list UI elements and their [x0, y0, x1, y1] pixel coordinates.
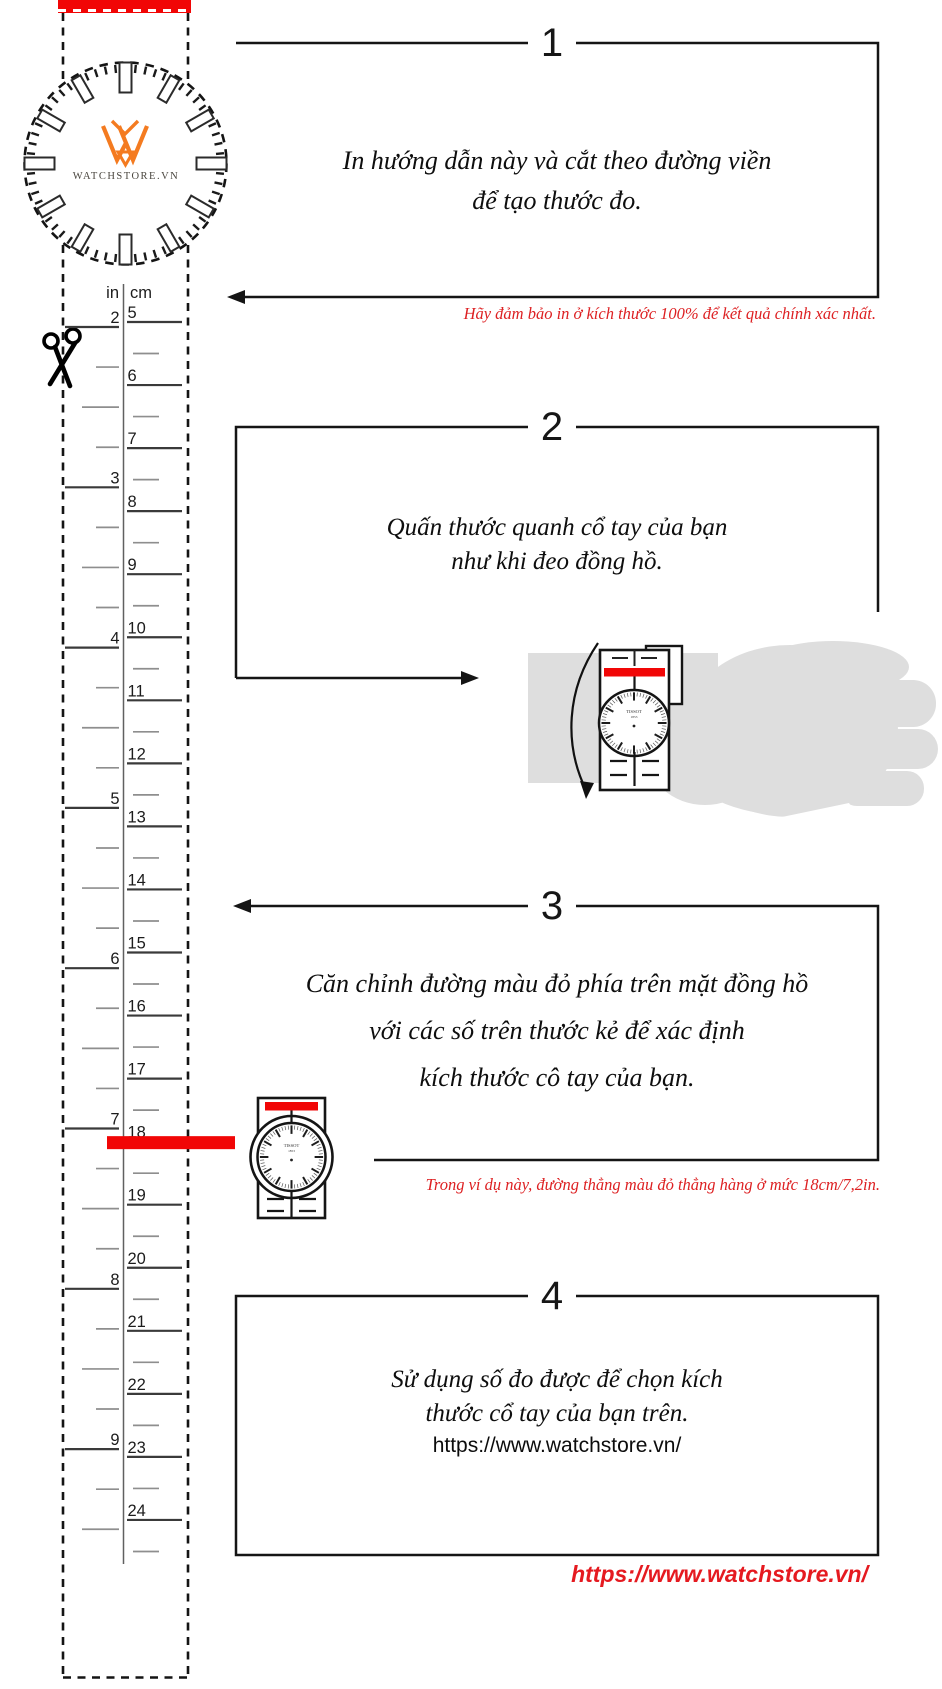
step-2-line-2: như khi đeo đồng hồ. [236, 545, 878, 579]
svg-text:22: 22 [128, 1376, 146, 1394]
svg-text:14: 14 [128, 871, 146, 889]
wrist-measure-guide-page: 2345678956789101112131415161718192021222… [0, 0, 942, 1689]
svg-text:23: 23 [128, 1439, 146, 1457]
step-1-number: 1 [512, 19, 592, 67]
mini-red-align-line [265, 1102, 318, 1111]
step-3-line-3: kích thước cô tay của bạn. [236, 1054, 878, 1101]
svg-text:11: 11 [128, 682, 145, 700]
red-measure-line-18cm [107, 1136, 235, 1149]
svg-text:12: 12 [128, 745, 146, 763]
step-4-line-1: Sử dụng số đo được để chọn kích [236, 1363, 878, 1397]
svg-text:5: 5 [128, 304, 137, 322]
svg-text:7: 7 [128, 430, 137, 448]
step-1-text: In hướng dẫn này và cắt theo đường viền … [236, 141, 878, 221]
hour-marker [25, 158, 55, 170]
svg-text:10: 10 [128, 619, 146, 637]
step-4-line-2: thước cổ tay của bạn trên. [236, 1397, 878, 1431]
red-align-line [604, 668, 665, 677]
finger [838, 680, 936, 727]
svg-text:24: 24 [128, 1502, 146, 1520]
step-3-line-2: với các số trên thước kẻ để xác định [236, 1007, 878, 1054]
hour-marker [197, 158, 227, 170]
svg-text:TISSOT: TISSOT [626, 709, 642, 714]
step-1-note: Hãy đảm bảo in ở kích thước 100% để kết … [276, 304, 876, 324]
svg-text:4: 4 [110, 630, 119, 648]
step-2-number: 2 [512, 403, 592, 451]
step-2-text: Quấn thước quanh cổ tay của bạn như khi … [236, 511, 878, 579]
step-1-line-1: In hướng dẫn này và cắt theo đường viền [236, 141, 878, 181]
svg-text:9: 9 [110, 1431, 119, 1449]
footer-website-link[interactable]: https://www.watchstore.vn/ [368, 1561, 868, 1588]
step-3-number: 3 [512, 882, 592, 930]
svg-text:20: 20 [128, 1250, 146, 1268]
mini-paper-watch: TISSOT1853 [251, 1098, 333, 1218]
wrist-illustration: TISSOT1853 [528, 641, 938, 818]
watchstore-brand-text: WATCHSTORE.VN [55, 171, 197, 182]
hour-marker [120, 235, 132, 265]
svg-text:8: 8 [128, 493, 137, 511]
svg-text:7: 7 [110, 1111, 119, 1129]
svg-text:6: 6 [128, 367, 137, 385]
ruler-unit-inches-label: in [88, 284, 119, 303]
svg-text:1853: 1853 [288, 1149, 295, 1153]
step-3-note: Trong ví dụ này, đường thẳng màu đỏ thẳn… [180, 1175, 880, 1195]
step-1-arrow-left [227, 290, 245, 304]
step-3-text: Căn chỉnh đường màu đỏ phía trên mặt đồn… [236, 960, 878, 1101]
svg-text:9: 9 [128, 556, 137, 574]
svg-text:8: 8 [110, 1271, 119, 1289]
svg-text:13: 13 [128, 808, 146, 826]
svg-text:21: 21 [128, 1313, 146, 1331]
step-4-text: Sử dụng số đo được để chọn kích thước cổ… [236, 1363, 878, 1431]
step-2-line-1: Quấn thước quanh cổ tay của bạn [236, 511, 878, 545]
svg-text:16: 16 [128, 998, 146, 1016]
svg-text:19: 19 [128, 1187, 146, 1205]
svg-text:5: 5 [110, 790, 119, 808]
ruler-scales: 2345678956789101112131415161718192021222… [65, 284, 235, 1564]
step-3-arrow-left [233, 899, 251, 913]
svg-text:2: 2 [110, 309, 119, 327]
svg-text:TISSOT: TISSOT [284, 1143, 300, 1148]
svg-text:6: 6 [110, 950, 119, 968]
step-4-number: 4 [512, 1272, 592, 1320]
ruler-unit-cm-label: cm [130, 284, 170, 303]
svg-text:15: 15 [128, 935, 146, 953]
svg-text:1853: 1853 [631, 715, 638, 719]
step-2-arrow-right [461, 671, 479, 685]
svg-text:17: 17 [128, 1061, 146, 1079]
step-4-website-link[interactable]: https://www.watchstore.vn/ [236, 1434, 878, 1458]
hour-marker [120, 63, 132, 93]
step-3-line-1: Căn chỉnh đường màu đỏ phía trên mặt đồn… [236, 960, 878, 1007]
step-1-line-2: để tạo thước đo. [236, 181, 878, 221]
svg-text:3: 3 [110, 469, 119, 487]
